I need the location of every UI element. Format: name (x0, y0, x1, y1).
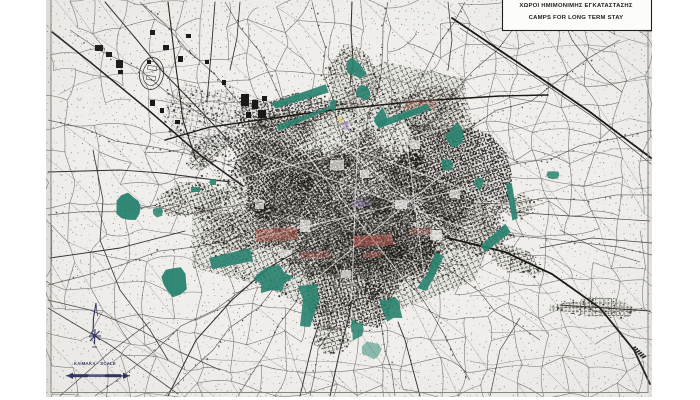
svg-text:CAMPS FOR LONG TERM STAY: CAMPS FOR LONG TERM STAY (529, 15, 624, 21)
svg-text:ΧΩΡΟΙ ΗΜΙΜΟΝΙΜΗΣ ΕΓΚΑΤΑΣΤΑΣΗΣ: ΧΩΡΟΙ ΗΜΙΜΟΝΙΜΗΣ ΕΓΚΑΤΑΣΤΑΣΗΣ (519, 3, 633, 9)
